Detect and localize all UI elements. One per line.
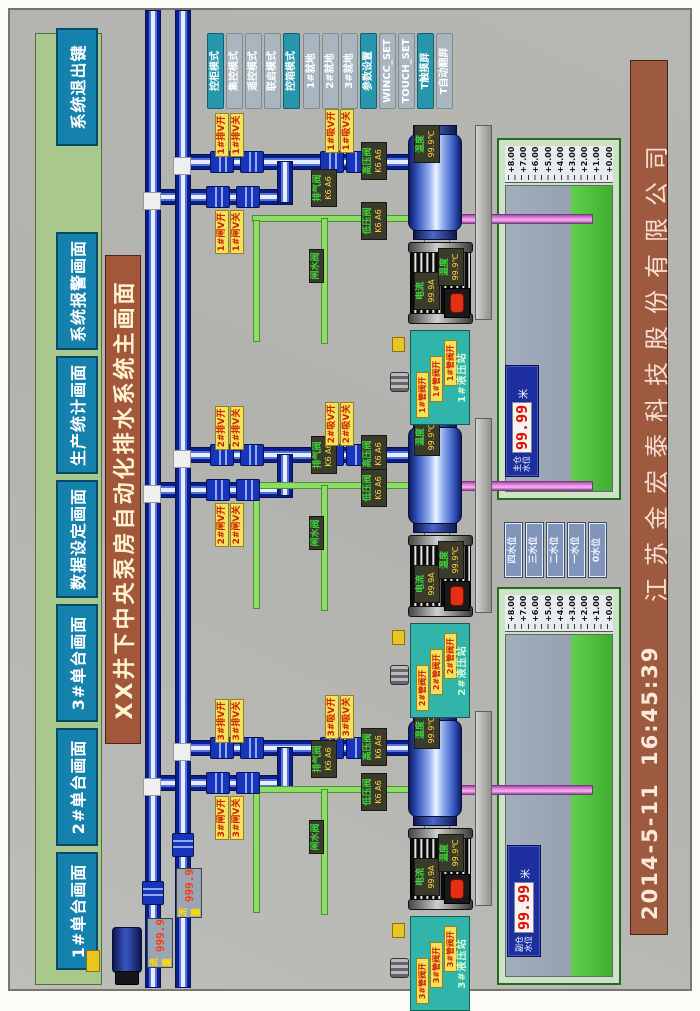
valve-tag: 1#吸V开 — [325, 109, 339, 153]
pipe-tee-joint — [143, 778, 161, 796]
sump-water-level — [571, 186, 612, 491]
hydraulic-pump-icon — [390, 372, 409, 392]
motor-current-label: 电流99.9A — [414, 858, 440, 896]
level-scale: +8.00+7.00+6.00+5.00+4.00+3.00+2.00+1.00… — [505, 595, 613, 632]
high-pressure-valve-label: 高压阀K6 A6 — [361, 435, 387, 473]
valve-coupling[interactable] — [206, 186, 230, 208]
scale-tick-label: +8.00 — [508, 147, 516, 173]
level-button-4[interactable]: 一水位 — [568, 523, 585, 577]
motor-run-lamp — [444, 874, 470, 904]
valve-tag: 1#闸V关 — [230, 210, 244, 254]
motor-current-label-status: 99.9A — [427, 860, 437, 894]
pipe-valve-open-indicator: 3#管阀开 — [416, 958, 429, 1004]
valve-tag: 1#排V关 — [230, 113, 244, 157]
mode-button-8[interactable]: 3#就地 — [341, 33, 358, 109]
aux-pump-port — [86, 950, 100, 972]
hydraulic-station-3#[interactable]: 3#管阀开3#管阀开3#管阀开3#液压站 — [410, 916, 470, 1011]
valve-tag: 3#闸V关 — [230, 796, 244, 840]
pipe-valve-open-indicator: 1#管阀开 — [416, 372, 429, 418]
level-button-3[interactable]: 二水位 — [547, 523, 564, 577]
valve-tag: 2#闸V关 — [230, 503, 244, 547]
flow-meter-2: 流量999.9 — [176, 868, 202, 918]
pump-temp-label-status: 99.9℃ — [427, 127, 437, 161]
vent-valve-label-status: K6 A6 — [324, 742, 334, 776]
pipe-tee-joint — [173, 450, 191, 468]
pump-cap-left — [413, 816, 457, 826]
nav-button-6[interactable]: 系统报警画面 — [56, 232, 98, 350]
motor-current-label: 电流99.9A — [414, 565, 440, 603]
valve-tag: 3#吸V关 — [340, 695, 354, 739]
valve-tag: 2#吸V关 — [340, 402, 354, 446]
high-pressure-valve-label-status: K6 A6 — [374, 437, 384, 471]
motor-temp-label-status: 99.9℃ — [451, 543, 461, 577]
nav-button-3[interactable]: 3#单台画面 — [56, 604, 98, 722]
high-pressure-valve-label-name: 高压阀 — [363, 437, 374, 471]
vent-valve-label-status: K6 A6 — [324, 171, 334, 205]
scale-tick-label: +4.00 — [557, 147, 565, 173]
scale-tick-label: +3.00 — [569, 596, 577, 622]
hydraulic-port — [392, 337, 405, 352]
aux-pipe-horizontal-1 — [254, 792, 259, 912]
level-button-5[interactable]: 0水位 — [589, 523, 606, 577]
hydraulic-station-title: 3#液压站 — [453, 917, 468, 1010]
low-pressure-valve-label-name: 低压阀 — [363, 775, 374, 809]
valve-tag: 2#闸V开 — [215, 503, 229, 547]
sump-level-unit: 米 — [517, 869, 532, 879]
pipe-tee-joint — [173, 743, 191, 761]
sump-level-display: 副仓水位99.99米 — [507, 845, 541, 957]
pump-temp-label-name: 温度 — [416, 420, 427, 454]
mode-button-4[interactable]: 联启模式 — [264, 33, 281, 109]
aux-pump-cap — [115, 971, 139, 985]
hydraulic-station-2#[interactable]: 2#管阀开2#管阀开2#管阀开2#液压站 — [410, 623, 470, 718]
branch-jog-pipe — [278, 455, 292, 495]
date-display: 2014-5-11 — [638, 782, 662, 920]
scale-tick-label: +4.00 — [557, 596, 565, 622]
mode-button-3[interactable]: 遥控模式 — [245, 33, 262, 109]
pump-platform — [475, 418, 492, 613]
mode-button-9[interactable]: 参数设置 — [360, 33, 377, 109]
motor-temp-label-name: 温度 — [440, 836, 451, 870]
motor-temp-label: 温度99.9℃ — [438, 541, 464, 579]
high-pressure-valve-label: 高压阀K6 A6 — [361, 142, 387, 180]
high-pressure-valve-label-name: 高压阀 — [363, 144, 374, 178]
scale-tick-label: +2.00 — [581, 596, 589, 622]
scale-tick-label: +5.00 — [545, 596, 553, 622]
sump-level-value: 99.99 — [514, 882, 534, 933]
footer-bar: 2014-5-11 16:45:39 江苏金宏泰科技股份有限公司 — [630, 60, 668, 935]
pump-temp-label-name: 温度 — [416, 127, 427, 161]
flow-label: 流量 — [147, 954, 173, 967]
motor-temp-label-status: 99.9℃ — [451, 836, 461, 870]
level-scale: +8.00+7.00+6.00+5.00+4.00+3.00+2.00+1.00… — [505, 146, 613, 183]
nav-button-5[interactable]: 生产统计画面 — [56, 356, 98, 474]
level-button-1[interactable]: 四水位 — [505, 523, 522, 577]
motor-current-label-status: 99.9A — [427, 274, 437, 308]
sump-level-value: 99.99 — [512, 402, 532, 453]
mode-button-13[interactable]: T自动翻屏 — [436, 33, 453, 109]
page-title: XX井下中央泵房自动化排水系统主画面 — [105, 255, 141, 744]
hydraulic-station-title: 2#液压站 — [453, 624, 468, 717]
gate-water-valve-label: 闸水阀 — [309, 820, 324, 854]
mode-button-6[interactable]: 1#就地 — [303, 33, 320, 109]
nav-button-2[interactable]: 2#单台画面 — [56, 728, 98, 846]
sump-level-unit: 米 — [515, 389, 530, 399]
pipe-coupling — [172, 833, 194, 857]
low-pressure-valve-label-name: 低压阀 — [363, 204, 374, 238]
nav-bar: 1#单台画面2#单台画面3#单台画面数据设定画面生产统计画面系统报警画面系统退出… — [35, 33, 102, 985]
time-display: 16:45:39 — [638, 646, 662, 766]
pipe-tee-joint — [143, 192, 161, 210]
valve-coupling[interactable] — [236, 186, 260, 208]
pump-temp-label: 温度99.9℃ — [414, 125, 440, 163]
low-pressure-valve-label: 低压阀K6 A6 — [361, 202, 387, 240]
branch-jog-pipe — [278, 748, 292, 788]
aux-pipe-horizontal-1 — [254, 488, 259, 608]
scale-tick-label: +5.00 — [545, 147, 553, 173]
vent-valve-label: 排气阀K6 A6 — [311, 169, 337, 207]
motor-current-label-name: 电流 — [416, 274, 427, 308]
mode-button-12[interactable]: T触摸屏 — [417, 33, 434, 109]
motor-current-label: 电流99.9A — [414, 272, 440, 310]
mode-button-10[interactable]: WINCC_SET — [379, 33, 396, 109]
valve-coupling[interactable] — [206, 772, 230, 794]
flow-label: 流量 — [176, 904, 202, 917]
flow-value: 999.9 — [183, 869, 196, 902]
company-name: 江苏金宏泰科技股份有限公司 — [637, 134, 672, 602]
low-pressure-valve-label-name: 低压阀 — [363, 471, 374, 505]
valve-tag: 1#排V开 — [215, 113, 229, 157]
hydraulic-station-1#[interactable]: 1#管阀开1#管阀开1#管阀开1#液压站 — [410, 330, 470, 425]
scale-tick-label: +0.00 — [606, 147, 614, 173]
valve-coupling[interactable] — [236, 772, 260, 794]
nav-button-4[interactable]: 数据设定画面 — [56, 480, 98, 598]
scale-tick-label: +3.00 — [569, 147, 577, 173]
aux-pipe-horizontal-1 — [254, 221, 259, 341]
pipe-valve-open-indicator: 3#管阀开 — [430, 942, 443, 988]
flow-meter-1: 流量999.9 — [147, 918, 173, 968]
aux-pump-body — [112, 927, 142, 973]
scale-tick-label: +1.00 — [593, 596, 601, 622]
flow-value: 999.9 — [154, 919, 167, 952]
pipe-tee-joint — [143, 485, 161, 503]
motor-run-lamp — [444, 288, 470, 318]
low-pressure-valve-label-status: K6 A6 — [374, 471, 384, 505]
scale-tick-label: +7.00 — [520, 147, 528, 173]
vent-valve-label-name: 排气阀 — [313, 742, 324, 776]
low-pressure-valve-label-status: K6 A6 — [374, 204, 384, 238]
high-pressure-valve-label-status: K6 A6 — [374, 144, 384, 178]
pump-cap-left — [413, 523, 457, 533]
hmi-screen: 1#单台画面2#单台画面3#单台画面数据设定画面生产统计画面系统报警画面系统退出… — [10, 10, 690, 989]
hydraulic-pump-icon — [390, 665, 409, 685]
scale-tick-label: +6.00 — [532, 596, 540, 622]
run-indicator — [450, 586, 464, 606]
motor-temp-label-status: 99.9℃ — [451, 250, 461, 284]
vent-valve-label-name: 排气阀 — [313, 438, 324, 472]
gate-water-valve-label: 闸水阀 — [309, 516, 324, 550]
run-indicator — [450, 293, 464, 313]
sump-level-display: 主仓水位99.99米 — [505, 365, 539, 477]
branch-jog-pipe — [278, 162, 292, 202]
valve-coupling[interactable] — [236, 479, 260, 501]
motor-temp-label: 温度99.9℃ — [438, 834, 464, 872]
valve-tag: 2#排V关 — [230, 406, 244, 450]
scale-tick-label: +7.00 — [520, 596, 528, 622]
valve-tag: 3#排V开 — [215, 699, 229, 743]
pipe-valve-open-indicator: 2#管阀开 — [416, 665, 429, 711]
motor-current-label-name: 电流 — [416, 860, 427, 894]
pipe-coupling — [142, 881, 164, 905]
motor-temp-label-name: 温度 — [440, 543, 451, 577]
run-indicator — [450, 879, 464, 899]
low-pressure-valve-label-status: K6 A6 — [374, 775, 384, 809]
low-pressure-valve-label: 低压阀K6 A6 — [361, 469, 387, 507]
valve-tag: 1#闸V开 — [215, 210, 229, 254]
high-pressure-valve-label: 高压阀K6 A6 — [361, 728, 387, 766]
sump-water-level — [571, 635, 612, 976]
mode-button-11[interactable]: TOUCH_SET — [398, 33, 415, 109]
motor-current-label-name: 电流 — [416, 567, 427, 601]
valve-coupling[interactable] — [206, 479, 230, 501]
valve-tag: 2#吸V开 — [325, 402, 339, 446]
gate-water-valve-label: 闸水阀 — [309, 249, 324, 283]
valve-tag: 3#闸V开 — [215, 796, 229, 840]
high-pressure-valve-label-status: K6 A6 — [374, 730, 384, 764]
scale-tick-label: +1.00 — [593, 147, 601, 173]
scale-tick-label: +6.00 — [532, 147, 540, 173]
pump-platform — [475, 711, 492, 906]
pipe-valve-open-indicator: 1#管阀开 — [430, 356, 443, 402]
level-button-2[interactable]: 三水位 — [526, 523, 543, 577]
pump-temp-label-status: 99.9℃ — [427, 713, 437, 747]
valve-tag: 2#排V开 — [215, 406, 229, 450]
pump-cap-left — [413, 230, 457, 240]
mode-button-7[interactable]: 2#就地 — [322, 33, 339, 109]
motor-temp-label-name: 温度 — [440, 250, 451, 284]
scale-tick-label: +8.00 — [508, 596, 516, 622]
pump-temp-label-status: 99.9℃ — [427, 420, 437, 454]
valve-tag: 3#吸V开 — [325, 695, 339, 739]
sump-name: 主仓水位 — [513, 456, 531, 472]
motor-current-label-status: 99.9A — [427, 567, 437, 601]
pump-temp-label-name: 温度 — [416, 713, 427, 747]
hydraulic-port — [392, 923, 405, 938]
scale-tick-label: +0.00 — [606, 596, 614, 622]
hydraulic-station-title: 1#液压站 — [453, 331, 468, 424]
vent-valve-label: 排气阀K6 A6 — [311, 740, 337, 778]
pipe-valve-open-indicator: 2#管阀开 — [430, 649, 443, 695]
mode-button-1[interactable]: 控柜模式 — [207, 33, 224, 109]
mode-button-2[interactable]: 集控模式 — [226, 33, 243, 109]
mode-button-5[interactable]: 控箱模式 — [283, 33, 300, 109]
hydraulic-pump-icon — [390, 958, 409, 978]
nav-button-7[interactable]: 系统退出键 — [56, 28, 98, 146]
vent-valve-label-name: 排气阀 — [313, 171, 324, 205]
motor-run-lamp — [444, 581, 470, 611]
low-pressure-valve-label: 低压阀K6 A6 — [361, 773, 387, 811]
motor-temp-label: 温度99.9℃ — [438, 248, 464, 286]
pipe-tee-joint — [173, 157, 191, 175]
hydraulic-port — [392, 630, 405, 645]
pump-platform — [475, 125, 492, 320]
valve-tag: 1#吸V关 — [340, 109, 354, 153]
scale-tick-label: +2.00 — [581, 147, 589, 173]
high-pressure-valve-label-name: 高压阀 — [363, 730, 374, 764]
valve-tag: 3#排V关 — [230, 699, 244, 743]
sump-name: 副仓水位 — [515, 936, 533, 952]
